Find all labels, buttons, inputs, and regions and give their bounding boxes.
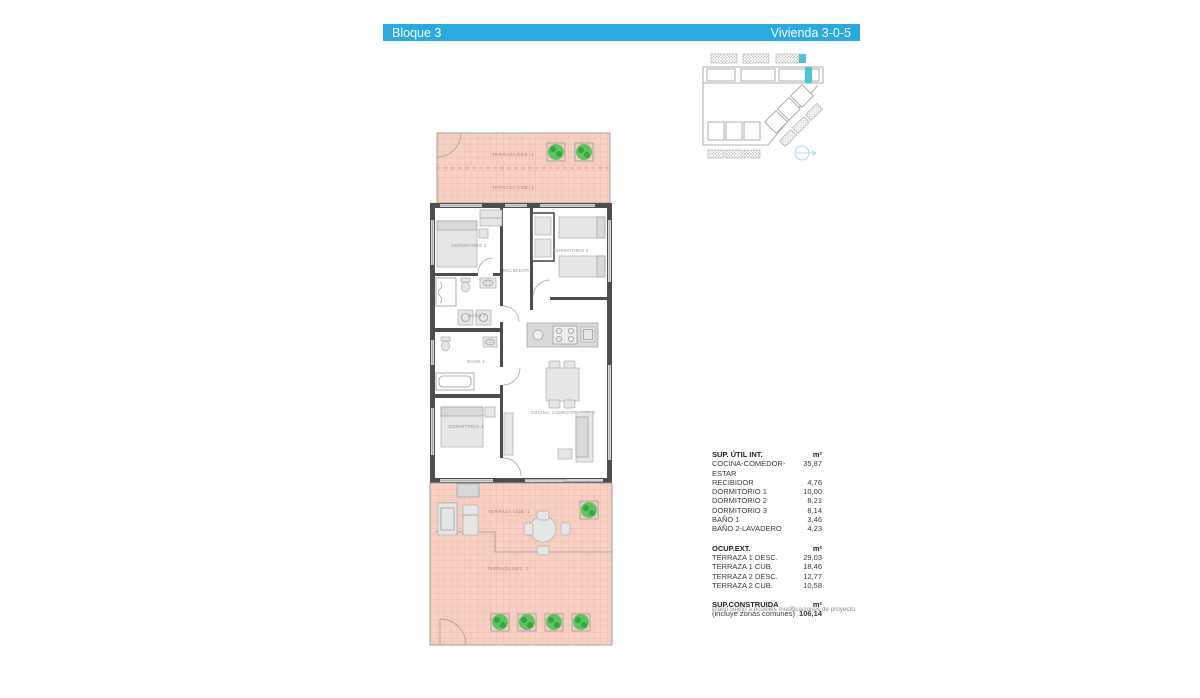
row-label: TERRAZA 2 DESC.: [712, 572, 778, 581]
key-plan-bottom-units: [708, 122, 760, 158]
row-value: 8,14: [807, 506, 822, 515]
area-tables: SUP. ÚTIL INT. m² COCINA-COMEDOR-ESTAR35…: [712, 450, 822, 628]
table-row: DORMITORIO 38,14: [712, 506, 822, 515]
key-plan-top-units: [703, 67, 823, 83]
row-value: 10,00: [803, 487, 822, 496]
table-row: TERRAZA 2 CUB.10,58: [712, 581, 822, 590]
room-dormitorio-3: DORMITORIO 3: [553, 217, 605, 277]
block-label: Bloque 3: [392, 26, 441, 40]
label-terraza-des-1: TERRAZA DES. 1: [487, 566, 529, 571]
table-title: OCUP.EXT.: [712, 544, 751, 553]
room-dormitorio-1: DORMITORIO 1: [441, 407, 495, 447]
apartment-floor-plan: TERRAZA DES. 2 TERRAZA CUB. 2: [425, 125, 620, 650]
key-plan-highlight-unit: [805, 67, 812, 83]
label-bano-1: BAÑO 1: [467, 359, 485, 364]
terrace-2: TERRAZA DES. 2 TERRAZA CUB. 2: [437, 133, 610, 203]
row-value: 8,21: [807, 496, 822, 505]
row-value: 18,46: [803, 562, 822, 571]
room-recibidor: RECIBIDOR: [503, 268, 530, 273]
key-plan-highlight-terrace: [799, 54, 806, 63]
table-row: COCINA-COMEDOR-ESTAR35,87: [712, 459, 822, 478]
table-header: SUP. ÚTIL INT. m²: [712, 450, 822, 459]
key-plan-top-strips: [711, 54, 806, 63]
row-label: DORMITORIO 3: [712, 506, 767, 515]
row-label: DORMITORIO 1: [712, 487, 767, 496]
row-value: 3,46: [807, 515, 822, 524]
row-label: TERRAZA 1 CUB.: [712, 562, 773, 571]
table-row: TERRAZA 2 DESC.12,77: [712, 572, 822, 581]
table-title: SUP. ÚTIL INT.: [712, 450, 763, 459]
table-row: DORMITORIO 110,00: [712, 487, 822, 496]
unit-header: m²: [813, 450, 822, 459]
site-key-plan: [688, 52, 833, 172]
row-value: 12,77: [803, 572, 822, 581]
disclaimer-note: Plano sujeto a posibles modificaciones d…: [712, 606, 855, 613]
row-label: COCINA-COMEDOR-ESTAR: [712, 459, 803, 478]
terrace-1: TERRAZA CUB. 1 TERRAZA DES. 1: [430, 483, 612, 645]
row-label: TERRAZA 2 CUB.: [712, 581, 773, 590]
label-terraza-cub-1: TERRAZA CUB. 1: [488, 509, 530, 514]
kitchen-area: [527, 323, 598, 347]
label-dormitorio-3: DORMITORIO 3: [553, 248, 588, 253]
header-bar: Bloque 3 Vivienda 3-0-5: [383, 24, 860, 41]
label-recibidor: RECIBIDOR: [503, 268, 530, 273]
north-compass-icon: [795, 146, 816, 160]
row-value: 10,58: [803, 581, 822, 590]
label-terraza-cub-2: TERRAZA CUB. 2: [492, 185, 534, 190]
table-row: TERRAZA 1 CUB.18,46: [712, 562, 822, 571]
label-dormitorio-1: DORMITORIO 1: [448, 424, 483, 429]
room-dormitorio-2: DORMITORIO 2: [437, 210, 502, 267]
table-row: BAÑO 13,46: [712, 515, 822, 524]
label-bano-2: BAÑO 2: [468, 313, 486, 318]
row-label: BAÑO 2-LAVADERO: [712, 524, 782, 533]
dining-area: COCINA, COMEDOR, ESTAR: [531, 361, 596, 415]
ocup-ext-table: OCUP.EXT. m² TERRAZA 1 DESC.29,03 TERRAZ…: [712, 544, 822, 590]
label-dormitorio-2: DORMITORIO 2: [451, 243, 486, 248]
sup-util-table: SUP. ÚTIL INT. m² COCINA-COMEDOR-ESTAR35…: [712, 450, 822, 534]
key-plan-diagonal-units: [765, 85, 823, 147]
floor-plan-page: Bloque 3 Vivienda 3-0-5: [0, 0, 1200, 698]
row-value: 4,23: [807, 524, 822, 533]
row-value: 35,87: [803, 459, 822, 478]
room-bano-1: BAÑO 1: [436, 337, 497, 390]
table-row: TERRAZA 1 DESC.29,03: [712, 553, 822, 562]
table-row: DORMITORIO 28,21: [712, 496, 822, 505]
table-row: BAÑO 2-LAVADERO4,23: [712, 524, 822, 533]
room-bano-2: BAÑO 2: [436, 278, 496, 325]
table-header: OCUP.EXT. m²: [712, 544, 822, 553]
label-terraza-des-2: TERRAZA DES. 2: [492, 152, 534, 157]
row-label: RECIBIDOR: [712, 478, 754, 487]
table-row: RECIBIDOR4,76: [712, 478, 822, 487]
living-area: [504, 412, 593, 462]
row-value: 4,76: [807, 478, 822, 487]
row-value: 29,03: [803, 553, 822, 562]
row-label: TERRAZA 1 DESC.: [712, 553, 778, 562]
row-label: BAÑO 1: [712, 515, 740, 524]
unit-header: m²: [813, 544, 822, 553]
unit-label: Vivienda 3-0-5: [771, 26, 851, 40]
row-label: DORMITORIO 2: [712, 496, 767, 505]
